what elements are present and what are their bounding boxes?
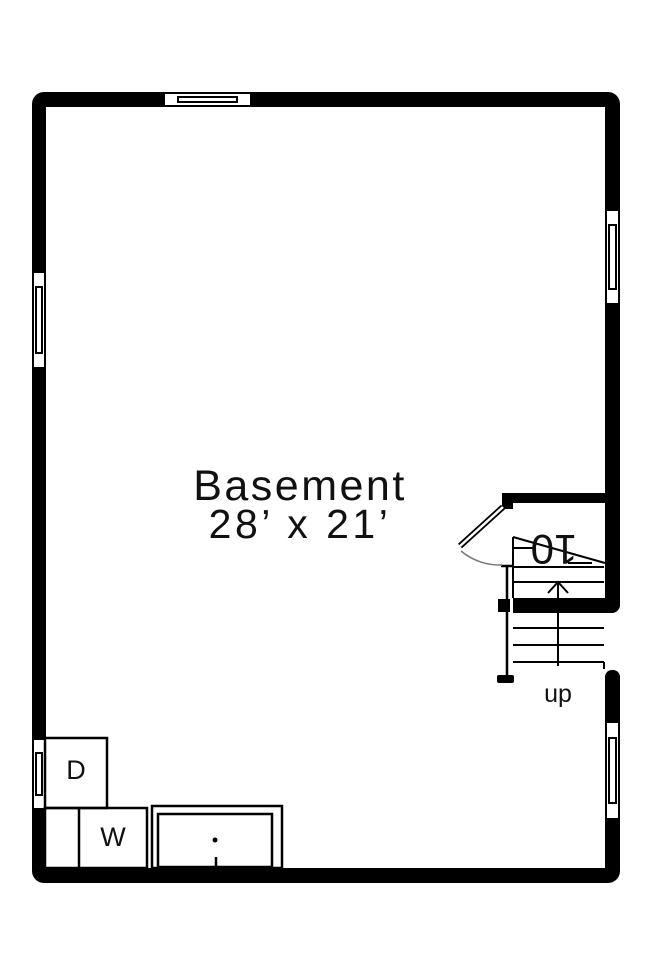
washer-label: W bbox=[79, 824, 147, 851]
floor-plan: Basement 28’ x 21’ 10 up D W bbox=[0, 0, 650, 975]
stair-railing bbox=[501, 566, 513, 676]
up-arrow-icon bbox=[548, 582, 568, 666]
room-dimensions: 28’ x 21’ bbox=[125, 501, 475, 548]
dryer-label: D bbox=[45, 757, 107, 784]
door-swing-arc bbox=[461, 551, 502, 565]
stairs-up-label: up bbox=[508, 682, 608, 707]
utility-unit-dot bbox=[213, 838, 218, 843]
stair-riser-count-label: 10 bbox=[529, 527, 579, 571]
